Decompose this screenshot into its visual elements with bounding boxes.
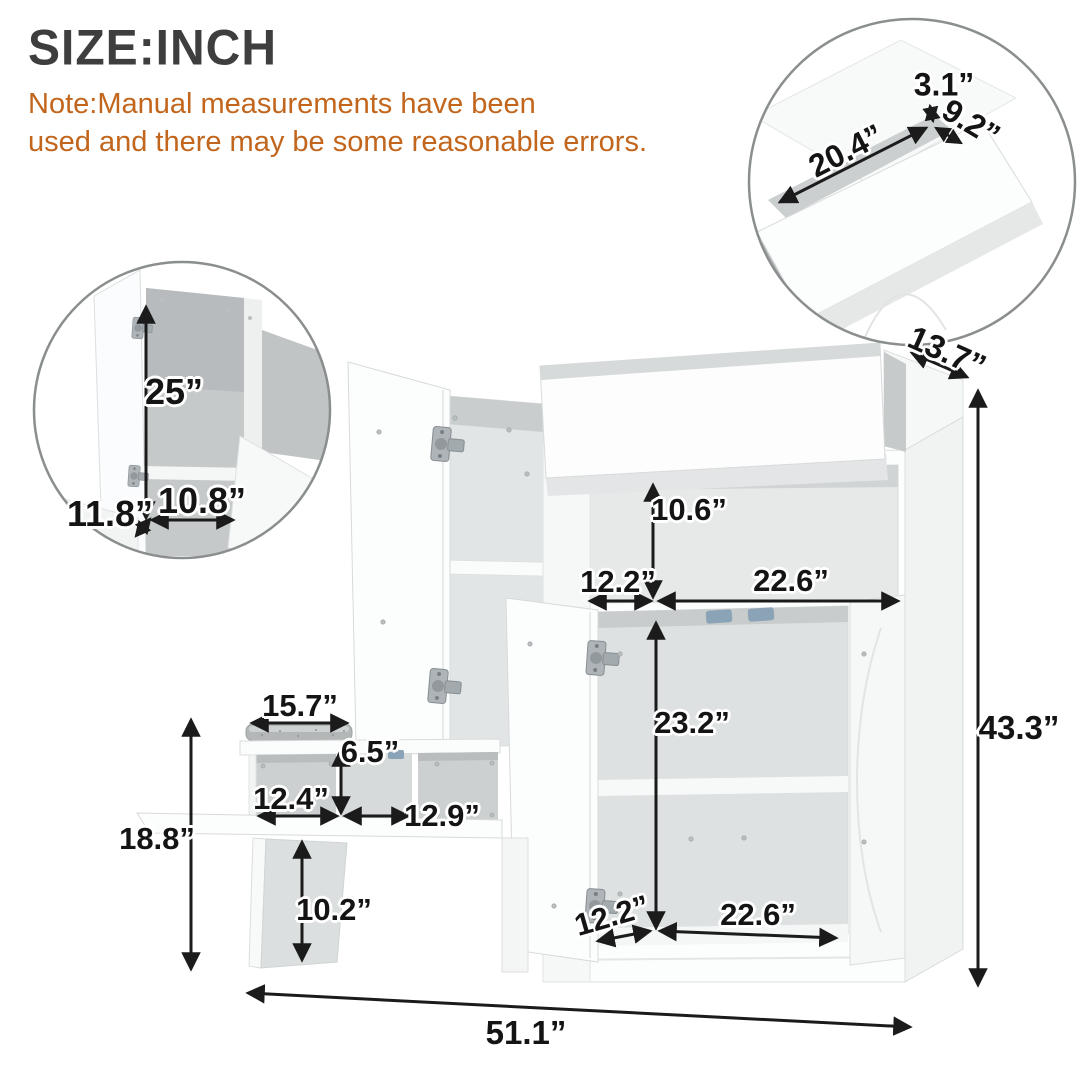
note-line-2: used and there may be some reasonable er… [28, 126, 647, 159]
dim-total-height-label: 43.3” [979, 709, 1060, 747]
dim-total-width-label: 51.1” [486, 1014, 567, 1052]
note-line-1: Note:Manual measurements have been [28, 88, 536, 121]
inset-drawer-detail [749, 19, 1075, 345]
drawer-side-pocket [884, 352, 906, 452]
dim-inset-inner-width-label: 10.8” [158, 480, 246, 522]
cabinet-right-side-panel [905, 417, 963, 982]
dim-door-opening-height-label: 23.2” [654, 705, 730, 741]
dim-cubby-right-width-label: 12.9” [404, 798, 480, 834]
cubby-left-shadow [256, 754, 336, 763]
dim-seat-top-width-label: 15.7” [262, 688, 338, 724]
diagram-canvas [0, 0, 1080, 1080]
seat-cushion [246, 724, 352, 741]
page-title: SIZE:INCH [28, 20, 277, 77]
inset-right-interior [262, 330, 334, 462]
cubby-right-shadow [418, 752, 498, 761]
desk-right-support [502, 838, 528, 972]
size-diagram-page: SIZE:INCH Note:Manual measurements have … [0, 0, 1080, 1080]
right-door-panel [850, 595, 905, 965]
dim-upper-opening-height-label: 10.6” [651, 492, 727, 528]
bench-drawing [137, 724, 528, 972]
dim-leg-clearance-height-label: 10.2” [296, 892, 372, 928]
dim-inset-inner-depth-label: 11.8” [67, 493, 153, 535]
dim-upper-left-width-label: 12.2” [580, 564, 656, 600]
dim-upper-right-width-label: 22.6” [753, 563, 829, 599]
dim-lower-right-width-label: 22.6” [720, 897, 796, 933]
dim-seat-section-height-label: 18.8” [119, 821, 195, 857]
dim-cubby-height-label: 6.5” [341, 734, 400, 770]
dim-inset-door-height-label: 25” [145, 371, 203, 413]
dim-cubby-left-width-label: 12.4” [253, 781, 329, 817]
arrow-total-width [248, 993, 910, 1027]
